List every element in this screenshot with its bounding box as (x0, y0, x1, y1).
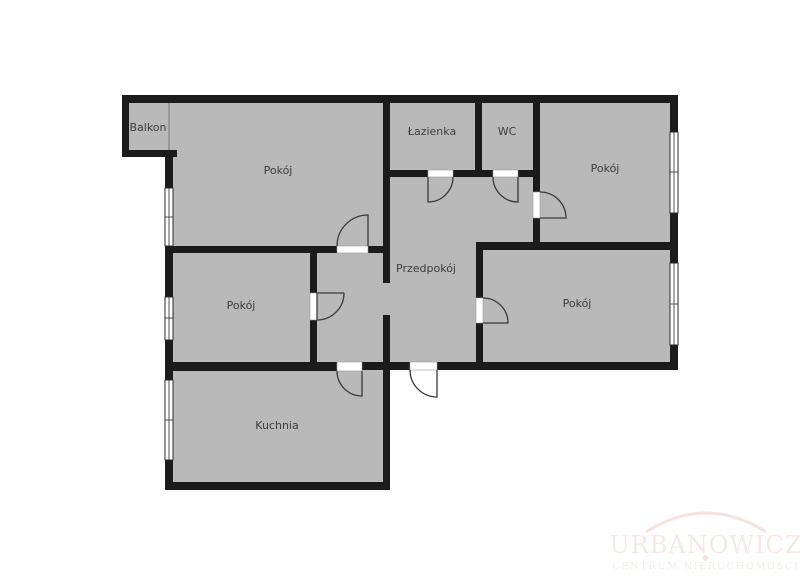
window-kitchen (165, 380, 173, 460)
wall-kitchen-bottom (165, 482, 390, 490)
wall-outer-right-3 (670, 345, 678, 370)
wall-outer-left-1 (165, 150, 173, 188)
window-room-top-left (165, 188, 173, 246)
wall-nook-west-lower (310, 320, 317, 363)
watermark-title: URBANOWICZ (609, 531, 800, 559)
wall-hall-west-upper (383, 103, 390, 283)
window-room-bottom-right (670, 263, 678, 345)
watermark-subtitle: CENTRUM NIERUCHOMOŚCI (612, 560, 799, 572)
room-label-balkon: Balkon (129, 121, 166, 134)
room-label-przedpokoj: Przedpokój (396, 262, 456, 275)
wall-outer-left-2 (165, 246, 173, 297)
wall-bath-bottom-mid (453, 170, 493, 177)
door-entrance (410, 362, 437, 397)
wall-outer-right-1 (670, 95, 678, 132)
wall-balcony-left (122, 95, 129, 157)
room-label-pokoj-middle-left: Pokój (227, 299, 256, 312)
wall-right-rooms-divider (476, 242, 678, 250)
room-label-pokoj-top-left: Pokój (264, 164, 293, 177)
room-label-pokoj-top-right: Pokój (591, 162, 620, 175)
watermark-logo: URBANOWICZ CENTRUM NIERUCHOMOŚCI (609, 513, 800, 572)
window-room-top-right (670, 132, 678, 213)
wall-hall-bottom (437, 362, 678, 370)
floorplan: Balkon Pokój Łazienka WC Pokój Pokój Prz… (0, 0, 800, 585)
wall-wc-east-lower (533, 218, 540, 250)
wall-hall-west-lower (383, 315, 390, 490)
floorplan-svg: Balkon Pokój Łazienka WC Pokój Pokój Prz… (0, 0, 800, 585)
wall-nook-west-upper (310, 246, 317, 293)
room-label-wc: WC (498, 125, 517, 138)
wall-wc-east-upper (533, 103, 540, 192)
wall-room-br-west-lower (476, 323, 483, 368)
wall-outer-right-2 (670, 213, 678, 263)
room-label-pokoj-bottom-right: Pokój (563, 297, 592, 310)
watermark-arc-icon (646, 513, 766, 532)
wall-bath-wc-divider (475, 103, 482, 177)
wall-outer-left-4 (165, 460, 173, 490)
wall-outer-top (122, 95, 678, 103)
window-room-middle-left (165, 297, 173, 340)
floor-areas (122, 95, 678, 490)
wall-room-br-west-upper (476, 242, 483, 298)
wall-outer-left-3 (165, 340, 173, 380)
room-label-kuchnia: Kuchnia (255, 419, 298, 432)
wall-kitchen-top-left (165, 362, 337, 371)
room-label-lazienka: Łazienka (407, 125, 456, 138)
